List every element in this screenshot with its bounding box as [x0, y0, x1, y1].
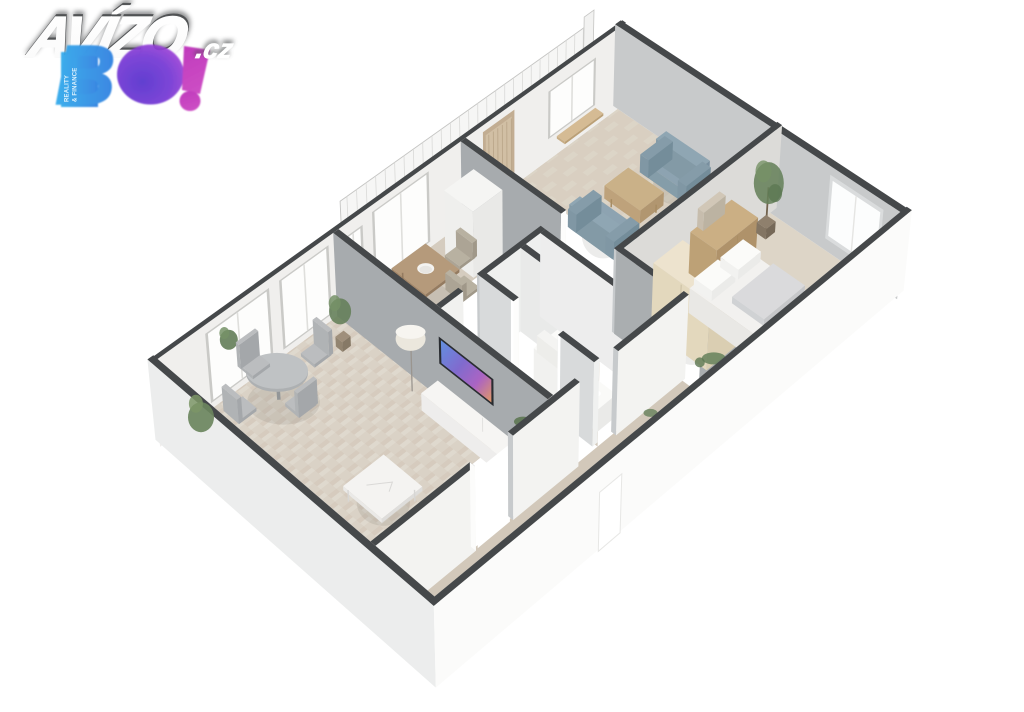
svg-text:.cz: .cz [193, 33, 236, 64]
svg-text:REALITY: REALITY [65, 75, 71, 102]
svg-text:& FINANCE: & FINANCE [73, 68, 79, 102]
